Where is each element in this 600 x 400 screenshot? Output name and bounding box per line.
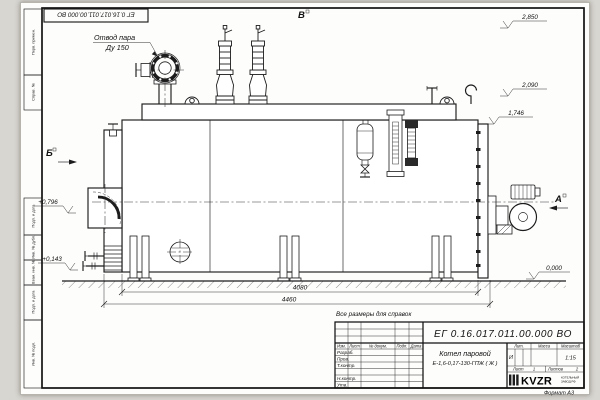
steam-outlet-callout: Отвод пара Ду 150 [93,33,158,57]
sheet-value: 1 [533,367,535,372]
kvzr-logo-icon [509,375,519,386]
burner-door [88,184,122,233]
ground-line [62,281,566,288]
svg-text:+0,143: +0,143 [42,256,62,263]
top-doc-number-text: ЕГ 0.16.017.011.00.000 ВО [57,11,134,18]
svg-text:2,850: 2,850 [521,14,538,21]
format-label: Формат А3 [544,391,575,397]
row-razrab: Разраб. [337,350,354,355]
elevation-2850: 2,850 [500,14,547,28]
col-izm: Изм. [337,344,346,349]
scale-label: Масштаб [561,344,581,349]
product-name: Котел паровой [439,349,491,358]
margin-label-podp-data-1: Подп. и дата [31,204,36,228]
row-prov: Пров. [337,357,349,362]
safety-valve-1 [216,26,234,105]
margin-label-sprav-no: Справ. № [31,83,36,101]
svg-text:0,000: 0,000 [546,265,562,272]
burner-fan-unit [488,185,540,234]
lit-label: Лит. [513,344,524,349]
elevation-0143: +0,143 [38,256,78,270]
sheets-label: Листов [547,367,564,372]
kvzr-logo: KVZR КОТЕЛЬНЫЙ ЗАВОД РФ [509,375,579,388]
product-designation: Е-1,6-0,17-130-ГПЖ ( Ж ) [433,361,498,367]
dim-shell-length: 4080 [293,285,308,292]
svg-text:В: В [298,10,305,21]
elevation-1746: 1,746 [486,110,533,124]
svg-text:Б: Б [46,148,53,159]
callout-line2: Ду 150 [105,43,129,52]
steam-outlet-assembly [136,50,184,108]
scale-value: 1:15 [565,356,577,362]
logo-text: KVZR [521,376,552,388]
row-tkontr: Т.контр. [337,363,356,368]
col-data: Дата [410,344,423,349]
sheets-value: 2 [575,367,579,372]
mass-label: Масса [538,344,551,349]
scanned-drawing-page: ЕГ 0.16.017.011.00.000 ВО Перв. примен. … [0,0,600,400]
view-marker-v: В [298,10,309,21]
elevation-0796: +0,796 [34,199,76,213]
blowdown-valves [83,251,104,271]
rear-flange-ring [476,124,488,278]
row-nkontr: Н.контр. [337,376,356,381]
reference-note: Все размеры для справок [336,310,412,318]
svg-text:1,746: 1,746 [508,110,524,117]
margin-label-vzam-inv: Взам. инв. № [31,260,36,284]
margin-label-podp-data-2: Подп. и дата [31,290,36,314]
lifting-lug-left [185,97,199,104]
svg-text:+0,796: +0,796 [38,199,58,206]
view-marker-b: Б [46,148,77,165]
safety-valve-2 [249,26,267,105]
lit-value: И [509,355,513,361]
callout-line1: Отвод пара [94,33,135,42]
logo-caption-2: ЗАВОД РФ [561,380,576,384]
boiler-side-view [62,26,566,289]
margin-label-perv-primen: Перв. примен. [31,29,36,55]
boiler-general-view-drawing: ЕГ 0.16.017.011.00.000 ВО Перв. примен. … [0,0,600,400]
title-block: ЕГ 0.16.017.011.00.000 ВО Котел паровой … [335,322,584,397]
col-docnum: № докум. [369,344,387,349]
elevation-2090: 2,090 [500,82,547,96]
margin-label-inv-podl: Инв. № подл. [31,342,36,366]
top-doc-number-stamp: ЕГ 0.16.017.011.00.000 ВО [44,9,148,22]
svg-text:2,090: 2,090 [521,82,538,89]
col-podp: Подп. [397,344,408,349]
row-utv: Утв. [337,383,347,388]
top-casing [142,104,456,120]
sheet-label: Лист [512,367,524,372]
elevation-0000: 0,000 [526,265,570,279]
margin-label-inv-dubl: Инв. № дубл. [31,235,36,259]
dim-overall-length: 4460 [282,297,297,304]
col-list: Лист [348,344,360,349]
doc-number: ЕГ 0.16.017.011.00.000 ВО [434,329,572,340]
svg-text:А: А [554,194,562,205]
lifting-lug-right [440,97,454,104]
